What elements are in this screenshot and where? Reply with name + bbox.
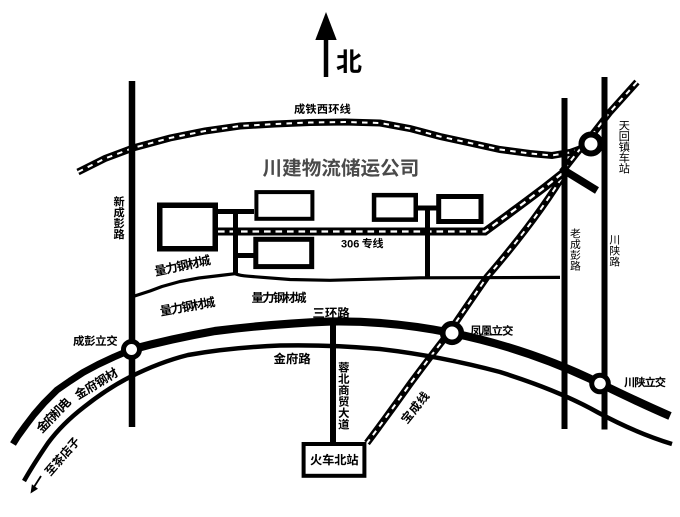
svg-text:306: 306 xyxy=(341,239,359,251)
